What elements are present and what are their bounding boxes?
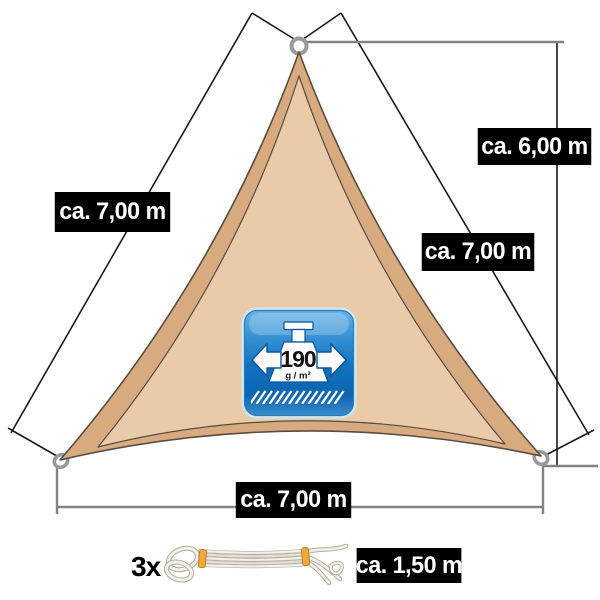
rope-image xyxy=(164,544,346,583)
rope-quantity-label: 3x xyxy=(131,551,160,583)
dimension-label-bottom-edge: ca. 7,00 m xyxy=(236,482,351,518)
rope-length-label: ca. 1,50 m xyxy=(357,548,462,583)
badge-weight-value: 190 xyxy=(280,346,316,372)
dimension-label-left-edge: ca. 7,00 m xyxy=(55,192,170,232)
badge-weight-unit: g / m² xyxy=(285,371,310,382)
product-diagram: 190 g / m² xyxy=(0,0,600,600)
dimension-label-right-edge: ca. 7,00 m xyxy=(422,233,535,271)
dimension-label-height: ca. 6,00 m xyxy=(478,128,591,165)
fabric-weight-badge: 190 g / m² xyxy=(243,309,355,417)
